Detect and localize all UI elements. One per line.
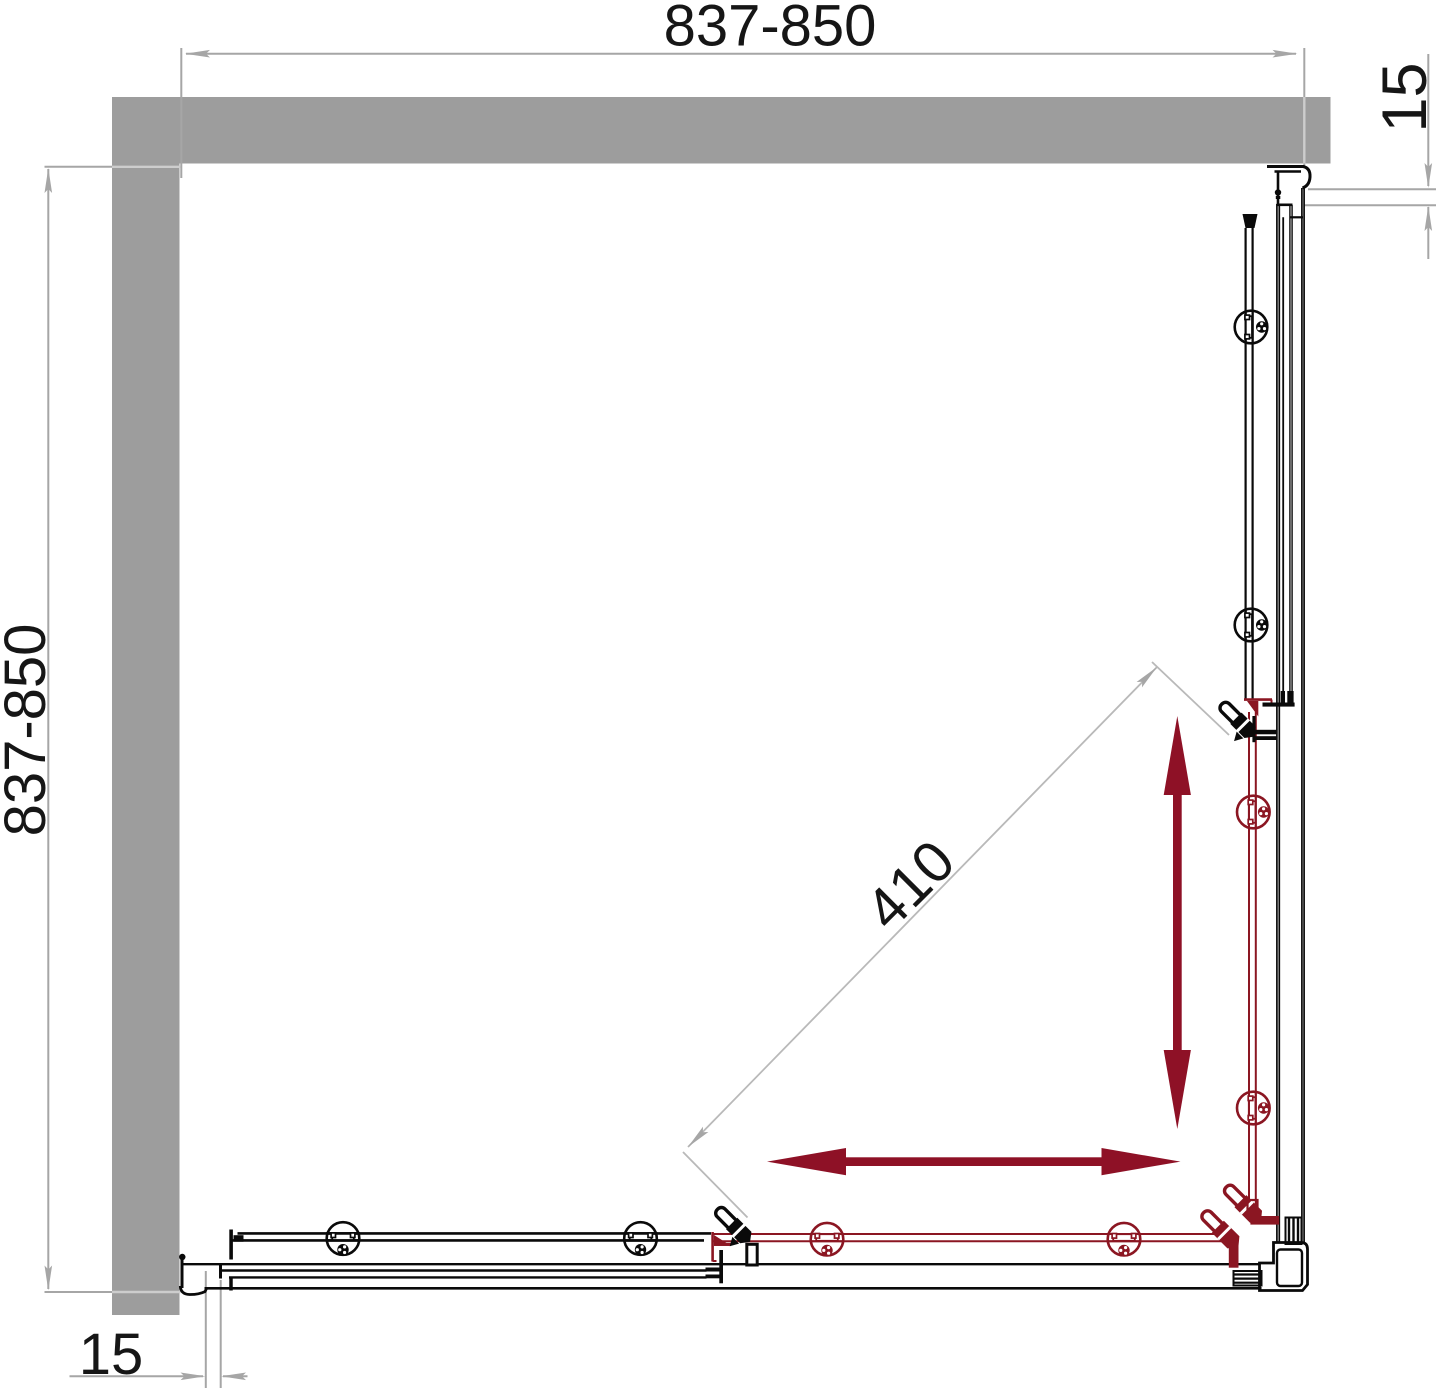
- svg-text:837-850: 837-850: [664, 0, 877, 59]
- svg-text:15: 15: [1370, 62, 1436, 132]
- svg-text:15: 15: [79, 1322, 144, 1387]
- svg-text:837-850: 837-850: [0, 624, 58, 837]
